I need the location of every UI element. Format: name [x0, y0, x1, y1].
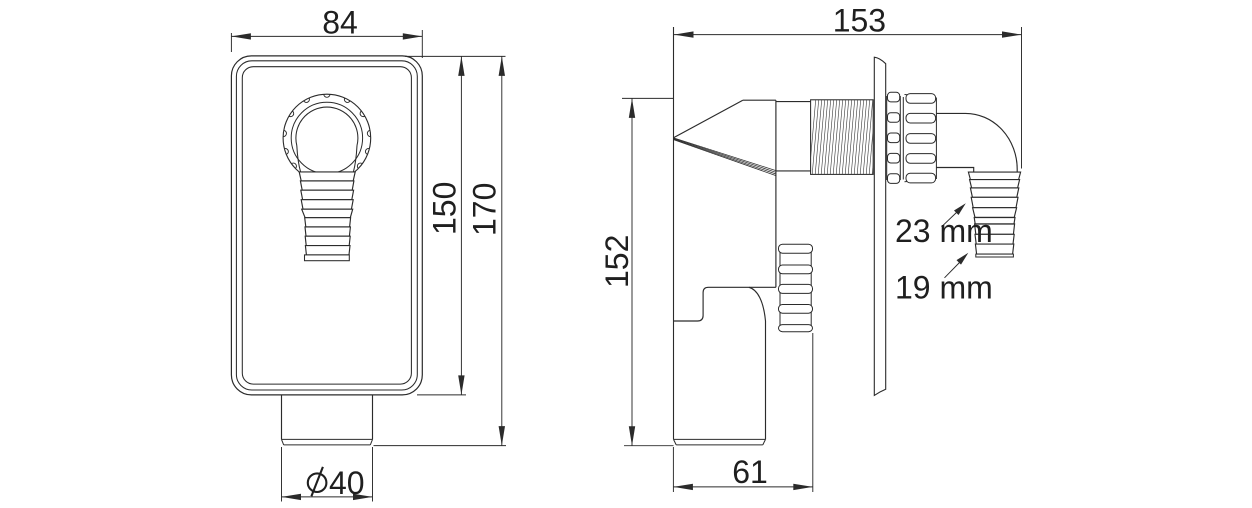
svg-text:61: 61	[732, 454, 768, 490]
svg-text:23 mm: 23 mm	[895, 213, 993, 249]
svg-text:150: 150	[427, 182, 463, 235]
svg-text:40: 40	[329, 465, 365, 501]
svg-text:84: 84	[322, 4, 358, 40]
svg-text:170: 170	[467, 183, 503, 236]
svg-text:19 mm: 19 mm	[895, 270, 993, 306]
svg-text:152: 152	[599, 235, 635, 288]
svg-text:153: 153	[833, 2, 886, 38]
